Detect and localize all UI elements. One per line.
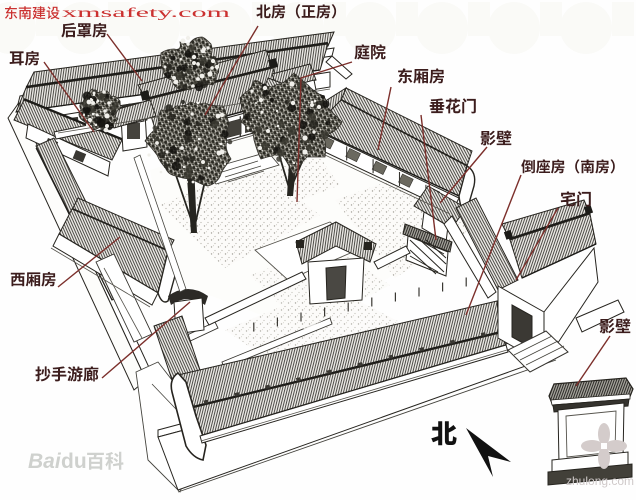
svg-text:xmsafety.com: xmsafety.com	[62, 5, 231, 20]
svg-text:du: du	[61, 450, 87, 473]
svg-text:Bai: Bai	[28, 450, 62, 473]
svg-text:zhulong.com: zhulong.com	[566, 474, 634, 488]
